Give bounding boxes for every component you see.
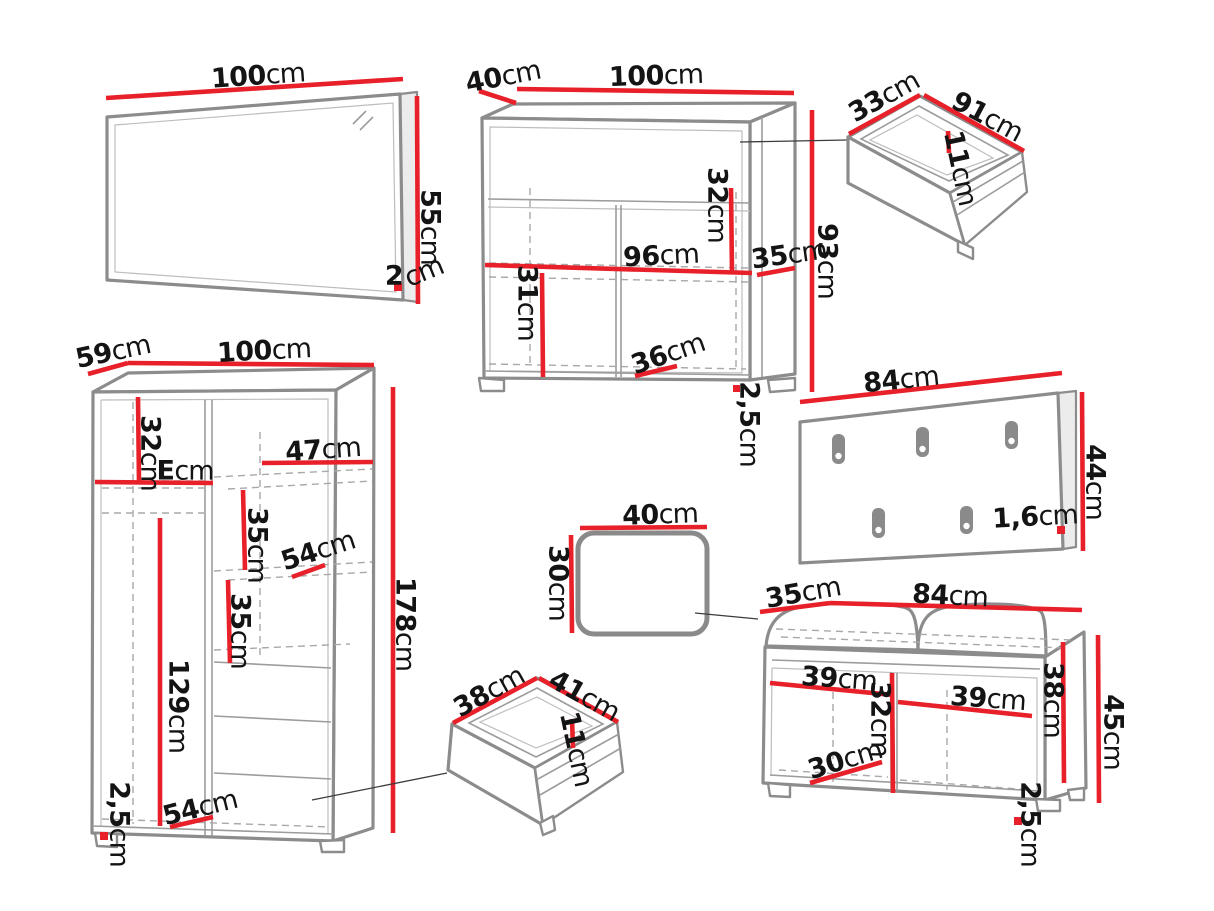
dim-wardrobe-shelf-width-left: Ecm (156, 458, 213, 485)
dim-chest-drawer-inner-height: 32cm (704, 167, 731, 243)
dim-chest-lower-inner-height: 31cm (514, 265, 541, 341)
dim-stool-height: 30cm (545, 545, 572, 621)
dim-wardrobe-shelf-gap-lower: 35cm (227, 593, 254, 669)
dim-chest-inner-width: 96cm (622, 241, 699, 272)
dim-coat-rack-height: 44cm (1082, 444, 1109, 520)
dim-coat-rack-width: 84cm (862, 363, 940, 398)
dim-bench-inner-height-side: 38cm (1040, 662, 1067, 738)
dim-coat-rack-thickness: 1,6cm (992, 501, 1079, 532)
dim-stool-width: 40cm (622, 500, 699, 530)
coat-rack-outline (800, 391, 1076, 563)
mirror-outline (107, 92, 418, 302)
dim-wardrobe-width: 100cm (216, 335, 311, 367)
dim-wardrobe-hanging-space-height: 129cm (165, 659, 192, 753)
dim-bench-height: 45cm (1100, 694, 1127, 770)
dim-chest-plinth-height: 2,5cm (736, 381, 763, 467)
dim-bench-plinth-height: 2,5cm (1017, 781, 1044, 867)
dim-mirror-width: 100cm (210, 59, 306, 92)
dim-wardrobe-shelf-width-right: 47cm (284, 434, 361, 466)
dim-bench-width: 84cm (911, 581, 988, 612)
stool-outline (578, 533, 707, 634)
dim-wardrobe-plinth-height: 2,5cm (106, 781, 133, 867)
dim-chest-width: 100cm (609, 61, 704, 91)
dim-wardrobe-height: 178cm (392, 577, 419, 671)
dim-bench-compartment-width-right: 39cm (949, 683, 1026, 715)
dim-wardrobe-shelf-gap-upper: 35cm (244, 507, 271, 583)
furniture-dimensions-diagram: 100cm 55cm 2 cm 40cm 100cm 93cm 32cm 96c… (0, 0, 1214, 911)
